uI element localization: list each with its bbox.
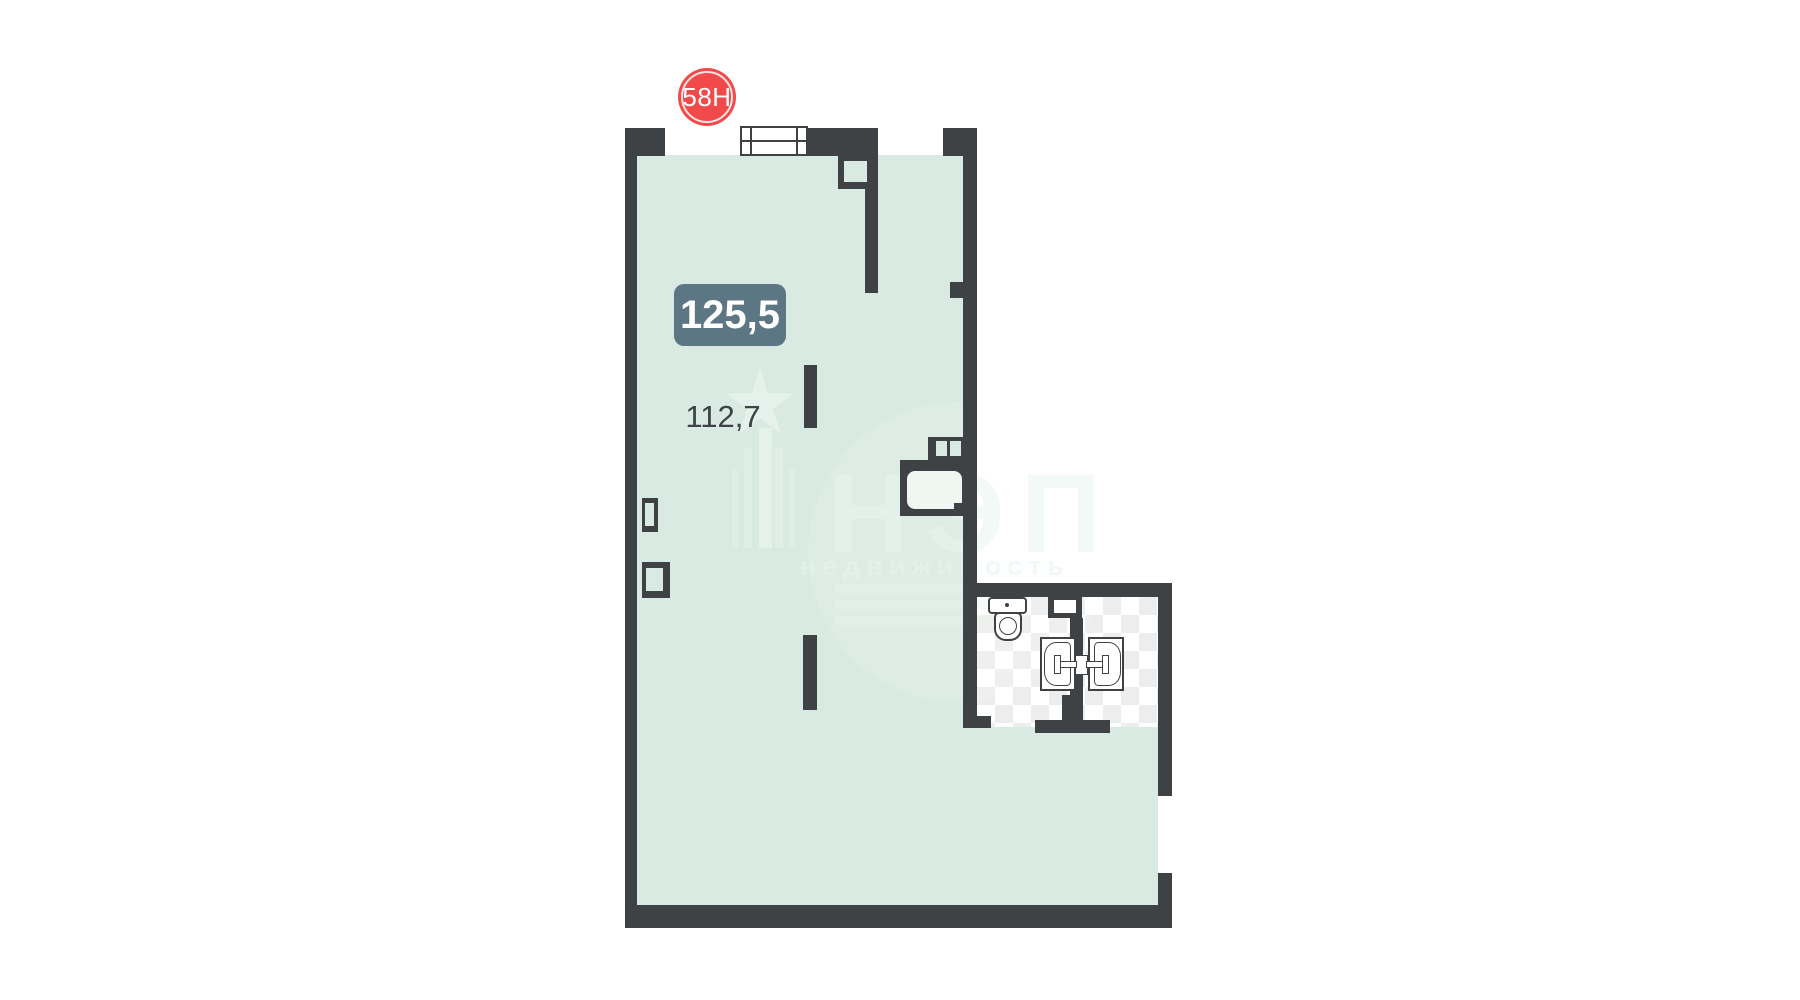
lower-extension-floor (963, 727, 1158, 905)
kitchen-wall-strip (954, 503, 977, 516)
wall-end-stub (977, 716, 991, 728)
wall-pilaster-cavity (646, 568, 663, 591)
area-room-label: 112,7 (668, 398, 778, 436)
bathroom-wall-bottom-segment (1035, 720, 1110, 733)
interior-pillar (803, 635, 817, 710)
watermark-tower-bar (775, 448, 783, 548)
window (740, 126, 808, 156)
exterior-wall-bottom (625, 905, 1172, 928)
faucet-right-icon (1102, 655, 1109, 674)
toilet-tank-button (1005, 603, 1009, 607)
duct-shaft-cavity (844, 161, 867, 182)
toilet-bowl-inner (999, 617, 1017, 635)
wall-notch (950, 282, 963, 298)
watermark-subtitle-text: недвижимость (800, 551, 1070, 582)
watermark-tower-bar (744, 448, 752, 548)
unit-number-badge[interactable]: 58Н (678, 68, 736, 126)
watermark-stripe (835, 616, 1012, 625)
badge-ring (681, 71, 733, 123)
exterior-wall-top-segment (625, 128, 665, 156)
bathroom-wall-right (1158, 597, 1172, 796)
exterior-wall-right-upper (963, 128, 977, 728)
interior-pillar (804, 365, 817, 428)
kitchen-duct-cavity (950, 441, 961, 456)
bathroom-partition-foot (1062, 695, 1083, 722)
watermark-tower-bar (759, 428, 772, 548)
window-frame-line (750, 128, 752, 154)
bathroom-duct-cavity (1054, 600, 1076, 613)
watermark-tower-bar (789, 470, 795, 548)
watermark-tower-bar (732, 470, 738, 548)
window-frame-line (796, 128, 798, 154)
interior-wall-spine (865, 189, 878, 293)
bathroom-wall-right-lower (1158, 873, 1172, 905)
exterior-wall-left (625, 128, 637, 928)
wall-pilaster-cavity (645, 503, 654, 526)
faucet-left-icon (1054, 655, 1061, 674)
floorplan-viewer: НЭП недвижимость (0, 0, 1800, 1000)
exterior-wall-top-segment (808, 128, 878, 156)
kitchen-duct-cavity (936, 441, 947, 456)
watermark-stripe (835, 600, 1012, 609)
area-total-label: 125,5 (674, 284, 786, 346)
